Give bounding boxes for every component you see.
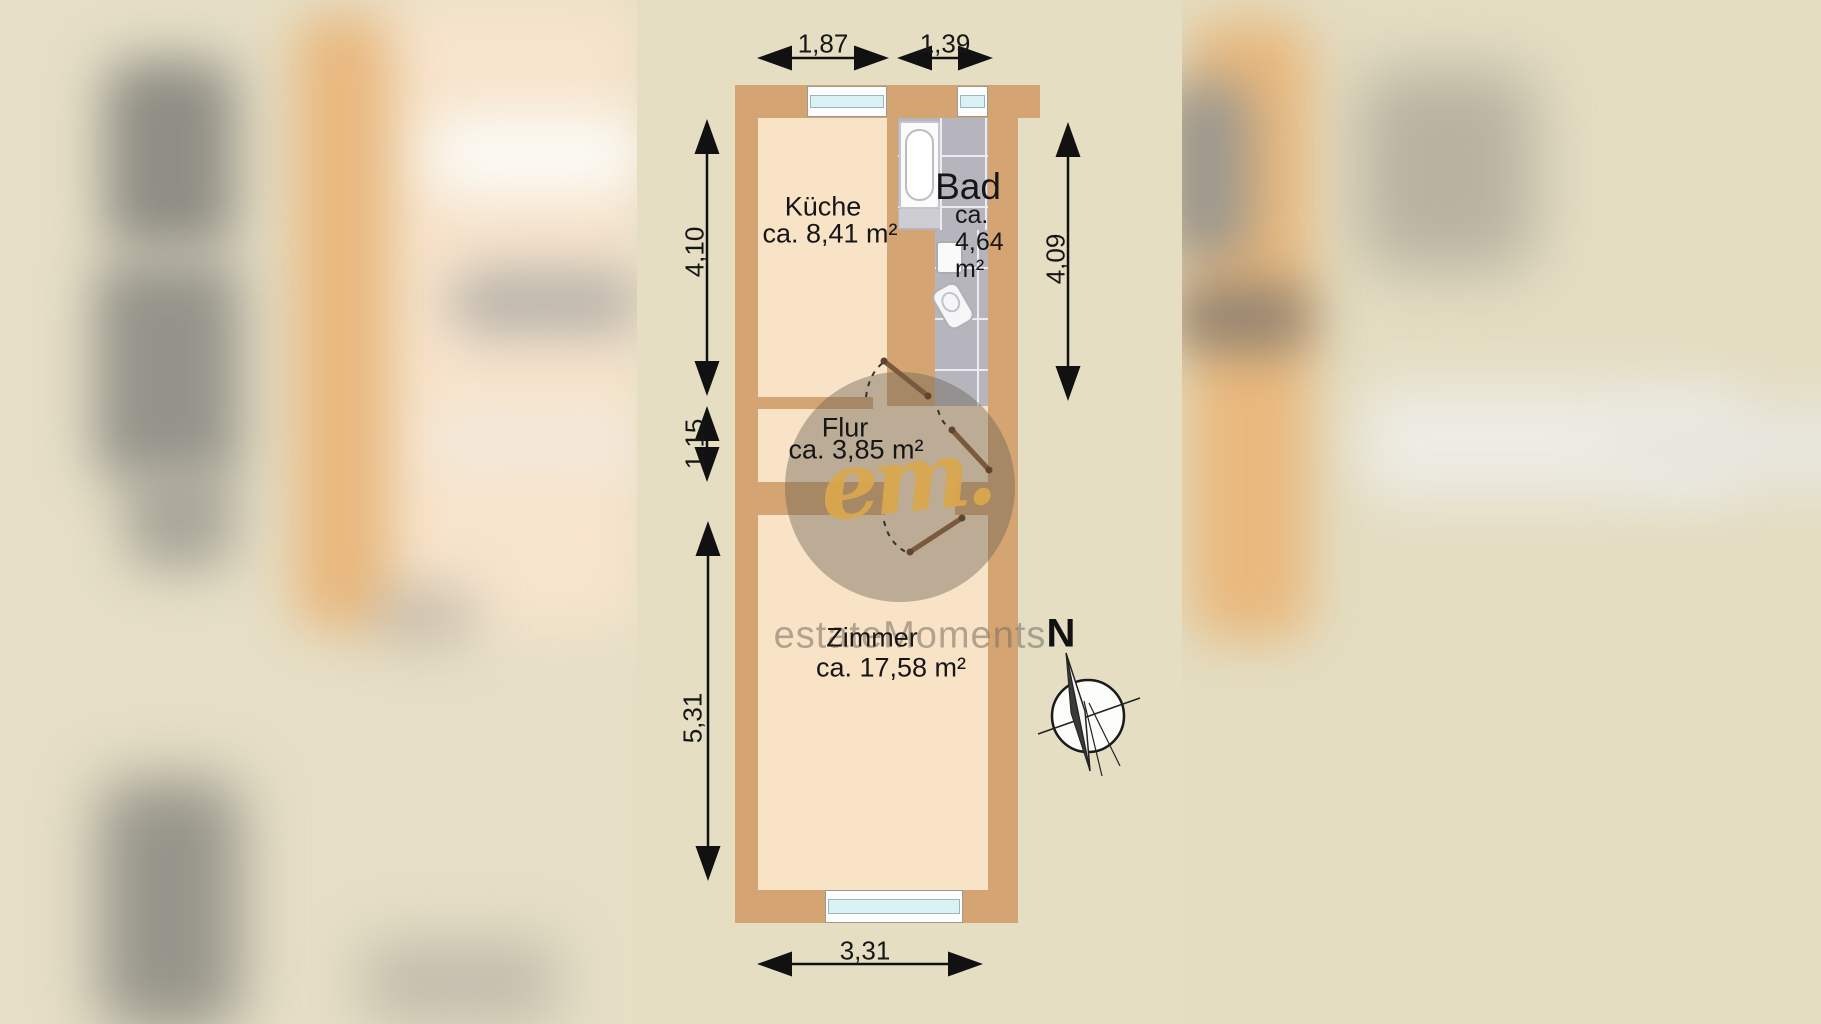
door-swing-kueche	[866, 362, 884, 397]
blur-blob	[430, 115, 637, 195]
door-swing-bad	[938, 410, 951, 429]
door-leaf-zimmer	[910, 518, 962, 552]
door-hinge	[959, 515, 966, 522]
door-leaf-bad	[952, 430, 989, 470]
dim-top-kueche: 1,87	[798, 29, 849, 60]
dimension-arrows	[707, 58, 1068, 964]
room-area-bad-unit: m²	[955, 255, 984, 284]
blur-blob	[125, 470, 235, 570]
room-area-flur: ca. 3,85 m²	[788, 435, 923, 466]
blur-blob	[1612, 405, 1821, 490]
blur-blob	[100, 780, 240, 1024]
blurred-background-left	[0, 0, 637, 1024]
blur-blob	[1360, 70, 1535, 270]
dim-bottom-zimmer: 3,31	[840, 936, 891, 967]
plan-linework	[637, 0, 1182, 1024]
blur-blob	[450, 270, 637, 335]
room-area-zimmer: ca. 17,58 m²	[816, 653, 966, 684]
compass-rose	[1038, 653, 1140, 776]
dim-left-kueche: 4,10	[680, 227, 711, 278]
dim-right-bad: 4,09	[1041, 234, 1072, 285]
blur-blob	[295, 15, 390, 630]
dim-left-flur: 1,15	[680, 419, 711, 470]
room-label-zimmer: Zimmer	[826, 623, 917, 654]
blur-blob	[1182, 80, 1252, 260]
blur-blob	[430, 420, 637, 465]
room-area-bad-ca: ca.	[955, 201, 988, 230]
room-area-kueche: ca. 8,41 m²	[762, 219, 897, 250]
room-area-bad-value: 4,64	[955, 228, 1004, 257]
blur-blob	[95, 260, 240, 480]
dim-top-bad: 1,39	[920, 29, 971, 60]
blur-blob	[105, 60, 235, 250]
compass-north-label: N	[1047, 612, 1076, 657]
blur-blob	[370, 585, 480, 645]
door-hinge	[907, 549, 914, 556]
blur-blob	[1182, 285, 1312, 350]
door-swing-zimmer	[884, 521, 908, 553]
dim-left-zimmer: 5,31	[678, 693, 709, 744]
door-hinge	[925, 393, 932, 400]
door-leaf-kueche	[884, 361, 928, 396]
door-hinge	[949, 427, 956, 434]
door-hinge	[881, 358, 888, 365]
blurred-background-right	[1182, 0, 1821, 1024]
floorplan-panel: em.	[637, 0, 1182, 1024]
door-hinge	[986, 467, 993, 474]
blur-blob	[360, 940, 560, 1024]
